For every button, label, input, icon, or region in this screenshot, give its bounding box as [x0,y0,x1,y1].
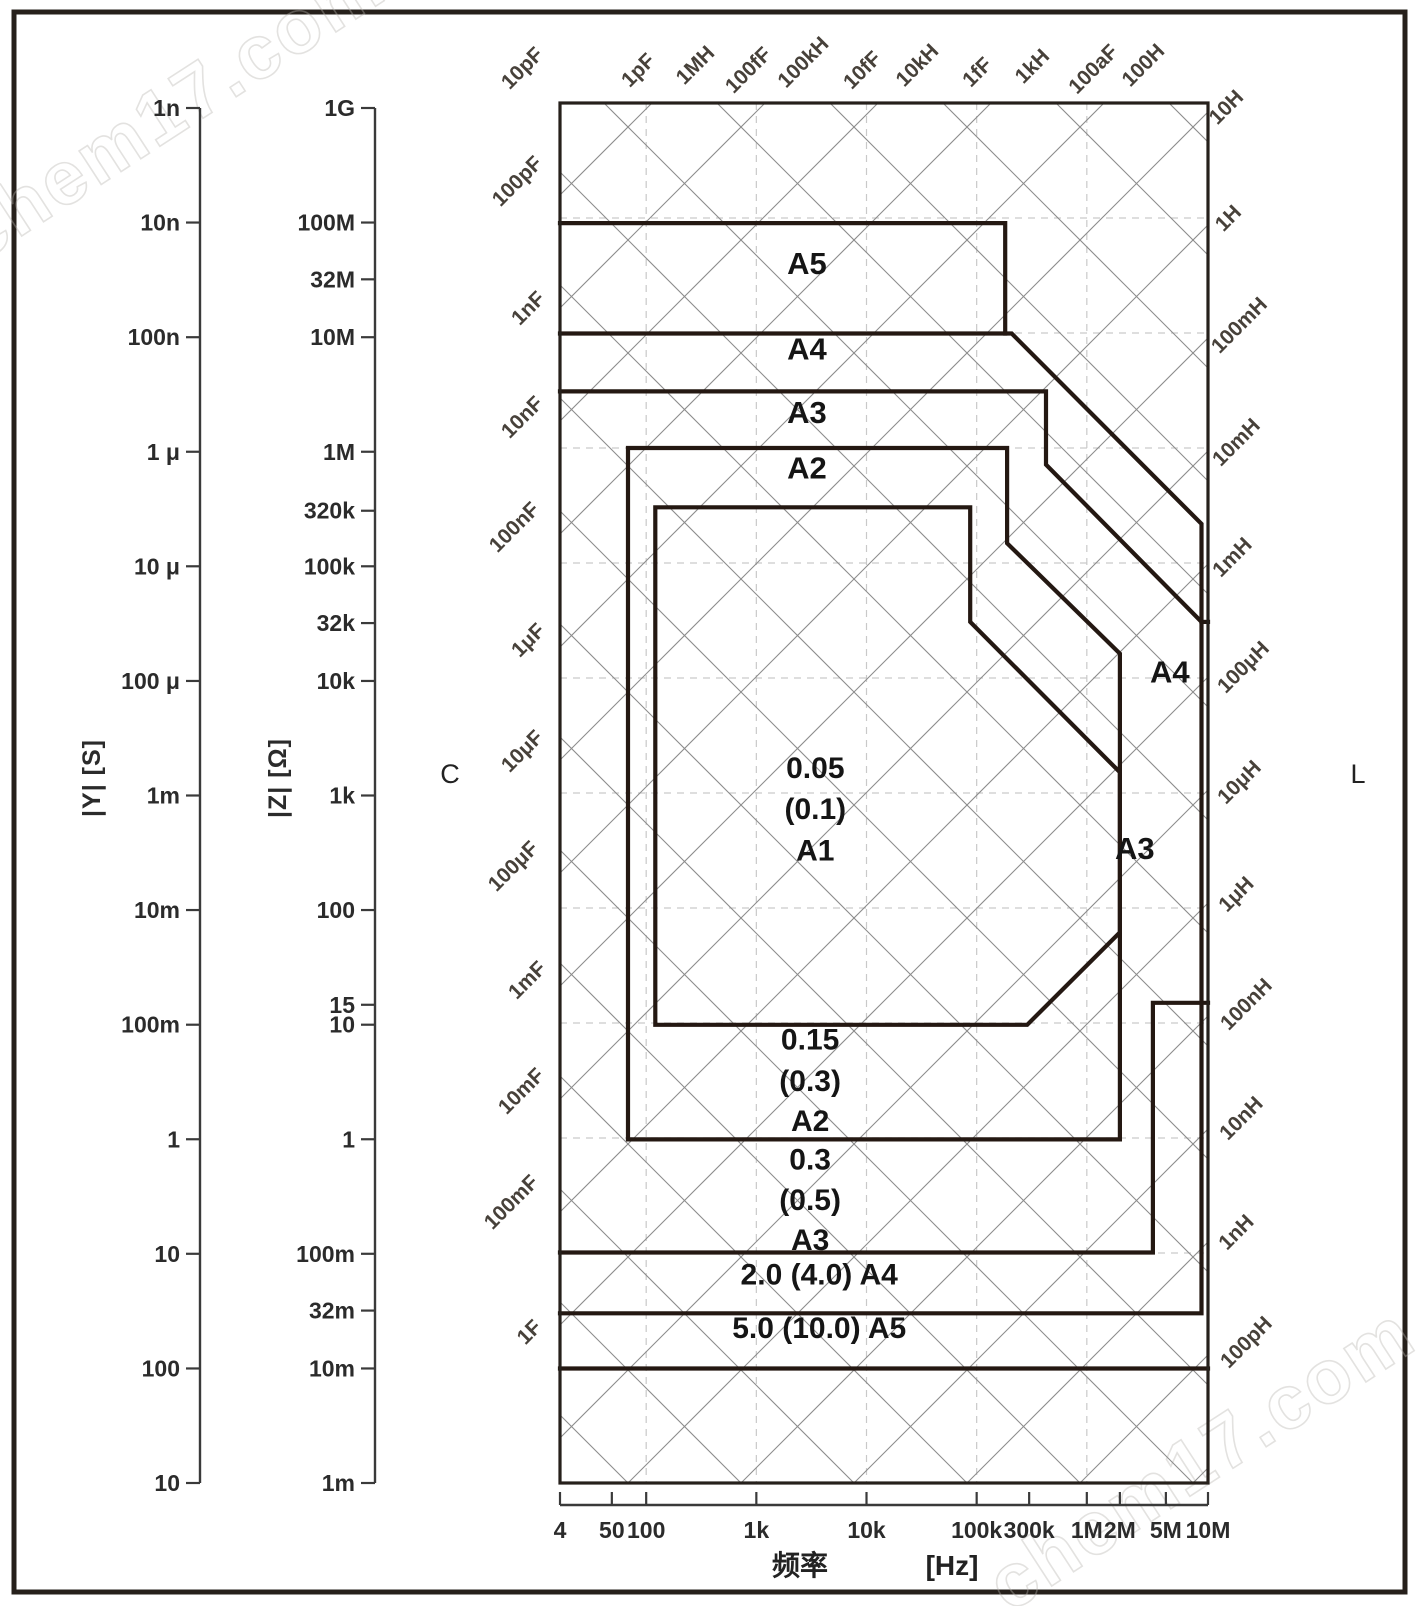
impedance-scale-tick-label: 10m [309,1355,355,1381]
impedance-scale-tick-label: 1k [329,783,355,809]
impedance-scale-tick-label: 320k [304,498,355,524]
zone-boundary [560,1003,1208,1253]
c-line [943,103,1208,368]
left-diagonal-label: 10nF [497,392,548,443]
left-diagonal-label: 1μF [507,619,550,662]
freq-axis-title: 频率 [772,1549,828,1581]
frequency-tick-label: 300k [1004,1517,1055,1543]
c-line [560,1302,741,1483]
c-line [604,103,1208,707]
right-diagonal-label: 1μH [1214,872,1258,916]
top-diagonal-label: 1kH [1011,45,1055,89]
right-diagonal-label: 10H [1205,86,1249,130]
c-line [830,103,1208,481]
c-line [1056,103,1208,255]
impedance-scale-tick-label: 1 [342,1126,355,1152]
c-line [560,1415,628,1483]
impedance-scale-tick-label: 1m [322,1470,355,1496]
zone-label: 5.0 (10.0) A5 [732,1312,906,1345]
impedance-scale-tick-label: 100M [297,210,355,236]
top-diagonal-label: 10kH [892,40,944,92]
admittance-scale-tick-label: 100n [128,324,180,350]
impedance-scale-tick-label: 32m [309,1298,355,1324]
zone-label: A1 [796,835,834,868]
admittance-scale-tick-label: 10 [154,1241,180,1267]
accuracy-chart: chem17.com chem17.com A5A4A3A20.05(0.1)A… [0,0,1419,1606]
frequency-tick-label: 10k [847,1517,886,1543]
admittance-scale-tick-label: 100 μ [121,668,180,694]
top-diagonal-label: 1fF [958,53,997,92]
frequency-tick-label: 10M [1186,1517,1231,1543]
impedance-scale-tick-label: 100 [317,897,355,923]
left-diagonal-label: 1nF [507,287,550,330]
frequency-tick-label: 100k [951,1517,1002,1543]
admittance-scale-tick-label: 100m [121,1012,180,1038]
zone-label: 0.15 [781,1024,839,1057]
right-diagonal-label: 100nH [1216,974,1277,1035]
frequency-tick-label: 2M [1104,1517,1136,1543]
frequency-tick-label: 50 [599,1517,625,1543]
l-line [560,103,765,308]
right-diagonal-label: 10mH [1208,414,1265,471]
frequency-tick-label: 1k [744,1517,770,1543]
side-scales: 1n10n100n1 μ10 μ100 μ1m10m100m110100101G… [121,95,375,1496]
impedance-scale-tick-label: 1M [323,439,355,465]
right-diagonal-label: 10μH [1213,756,1266,809]
capacitance-inductance-labels: 10pF1pF1MH100fF100kH10fF10kH1fF1kH100aF1… [480,32,1277,1372]
freq-axis-unit: [Hz] [926,1550,979,1581]
zone-label: A4 [787,332,827,367]
zone-label: 0.05 [786,752,844,785]
admittance-scale-tick-label: 100 [142,1355,180,1381]
zone-label: A3 [1115,831,1155,866]
top-diagonal-label: 10fF [839,47,886,94]
zone-label: A2 [791,1105,829,1138]
left-diagonal-label: 100nF [485,498,544,557]
c-line [1169,103,1208,142]
admittance-scale-tick-label: 10m [134,897,180,923]
l-line [560,103,652,195]
frequency-tick-label: 100 [627,1517,665,1543]
admittance-scale-tick-label: 10n [140,210,180,236]
l-line [560,103,878,421]
frequency-tick-label: 5M [1150,1517,1182,1543]
left-diagonal-label: 10mF [494,1064,549,1119]
left-diagonal-label: 100μF [484,837,543,896]
left-diagonal-label: 1F [513,1315,547,1349]
top-diagonal-label: 100H [1118,40,1170,92]
right-diagonal-label: 10nH [1215,1092,1268,1145]
zone-boundary [628,448,1120,1139]
axis-title-impedance: |Z| [Ω] [264,738,292,818]
right-diagonal-label: 1mH [1208,533,1256,581]
zone-label: (0.1) [784,793,846,826]
watermark-bottom-right: chem17.com [972,1289,1419,1606]
admittance-scale-tick-label: 10 μ [134,553,180,579]
top-diagonal-label: 10pF [497,43,548,94]
impedance-scale-tick-label: 100k [304,553,355,579]
left-diagonal-label: 10μF [497,726,548,777]
top-diagonal-label: 100aF [1064,40,1122,98]
zone-label: A4 [1150,655,1190,690]
admittance-scale-tick-label: 1 [167,1126,180,1152]
impedance-scale-tick-label: 1G [324,95,355,121]
top-diagonal-label: 1pF [617,49,660,92]
frequency-tick-label: 1M [1071,1517,1103,1543]
left-diagonal-label: 100pF [488,152,547,211]
admittance-scale-tick-label: 10 [154,1470,180,1496]
impedance-scale-tick-label: 32M [310,266,355,292]
left-diagonal-label: 100mF [480,1171,543,1234]
right-diagonal-label: 1nH [1214,1210,1258,1254]
zone-boundary [560,223,1005,333]
accuracy-chart-figure: chem17.com chem17.com A5A4A3A20.05(0.1)A… [0,0,1419,1606]
inductance-axis-letter: L [1350,759,1365,789]
impedance-scale-tick-label: 10M [310,324,355,350]
zone-label: 2.0 (4.0) A4 [741,1258,899,1291]
admittance-scale-tick-label: 1n [153,95,180,121]
admittance-scale-tick-label: 1 μ [147,439,180,465]
zone-label: (0.5) [779,1184,841,1217]
frequency-tick-label: 4 [554,1517,567,1543]
zone-label: A3 [787,395,827,430]
l-line [560,103,991,534]
admittance-scale-tick-label: 1m [147,783,180,809]
top-diagonal-label: 1MH [672,42,720,90]
axis-title-admittance: |Y| [S] [78,739,106,817]
left-diagonal-label: 1mF [504,957,551,1004]
right-diagonal-label: 100μH [1213,637,1274,698]
zone-label: A2 [787,450,827,485]
zone-label: (0.3) [779,1065,841,1098]
l-line [560,103,1104,647]
top-diagonal-label: 100fF [721,43,776,98]
impedance-scale-tick-label: 32k [317,610,356,636]
zone-label: A3 [791,1224,829,1257]
right-diagonal-label: 100mH [1207,293,1272,358]
impedance-scale-tick-label: 100m [296,1241,355,1267]
zone-label: 0.3 [789,1144,831,1177]
zone-label: A5 [787,246,827,281]
top-diagonal-label: 100kH [773,32,833,92]
impedance-scale-tick-label: 10k [317,668,356,694]
impedance-scale-tick-label: 10 [329,1012,355,1038]
right-diagonal-label: 1H [1211,201,1246,236]
capacitance-axis-letter: C [440,759,460,789]
accuracy-zone-outlines [560,223,1208,1368]
